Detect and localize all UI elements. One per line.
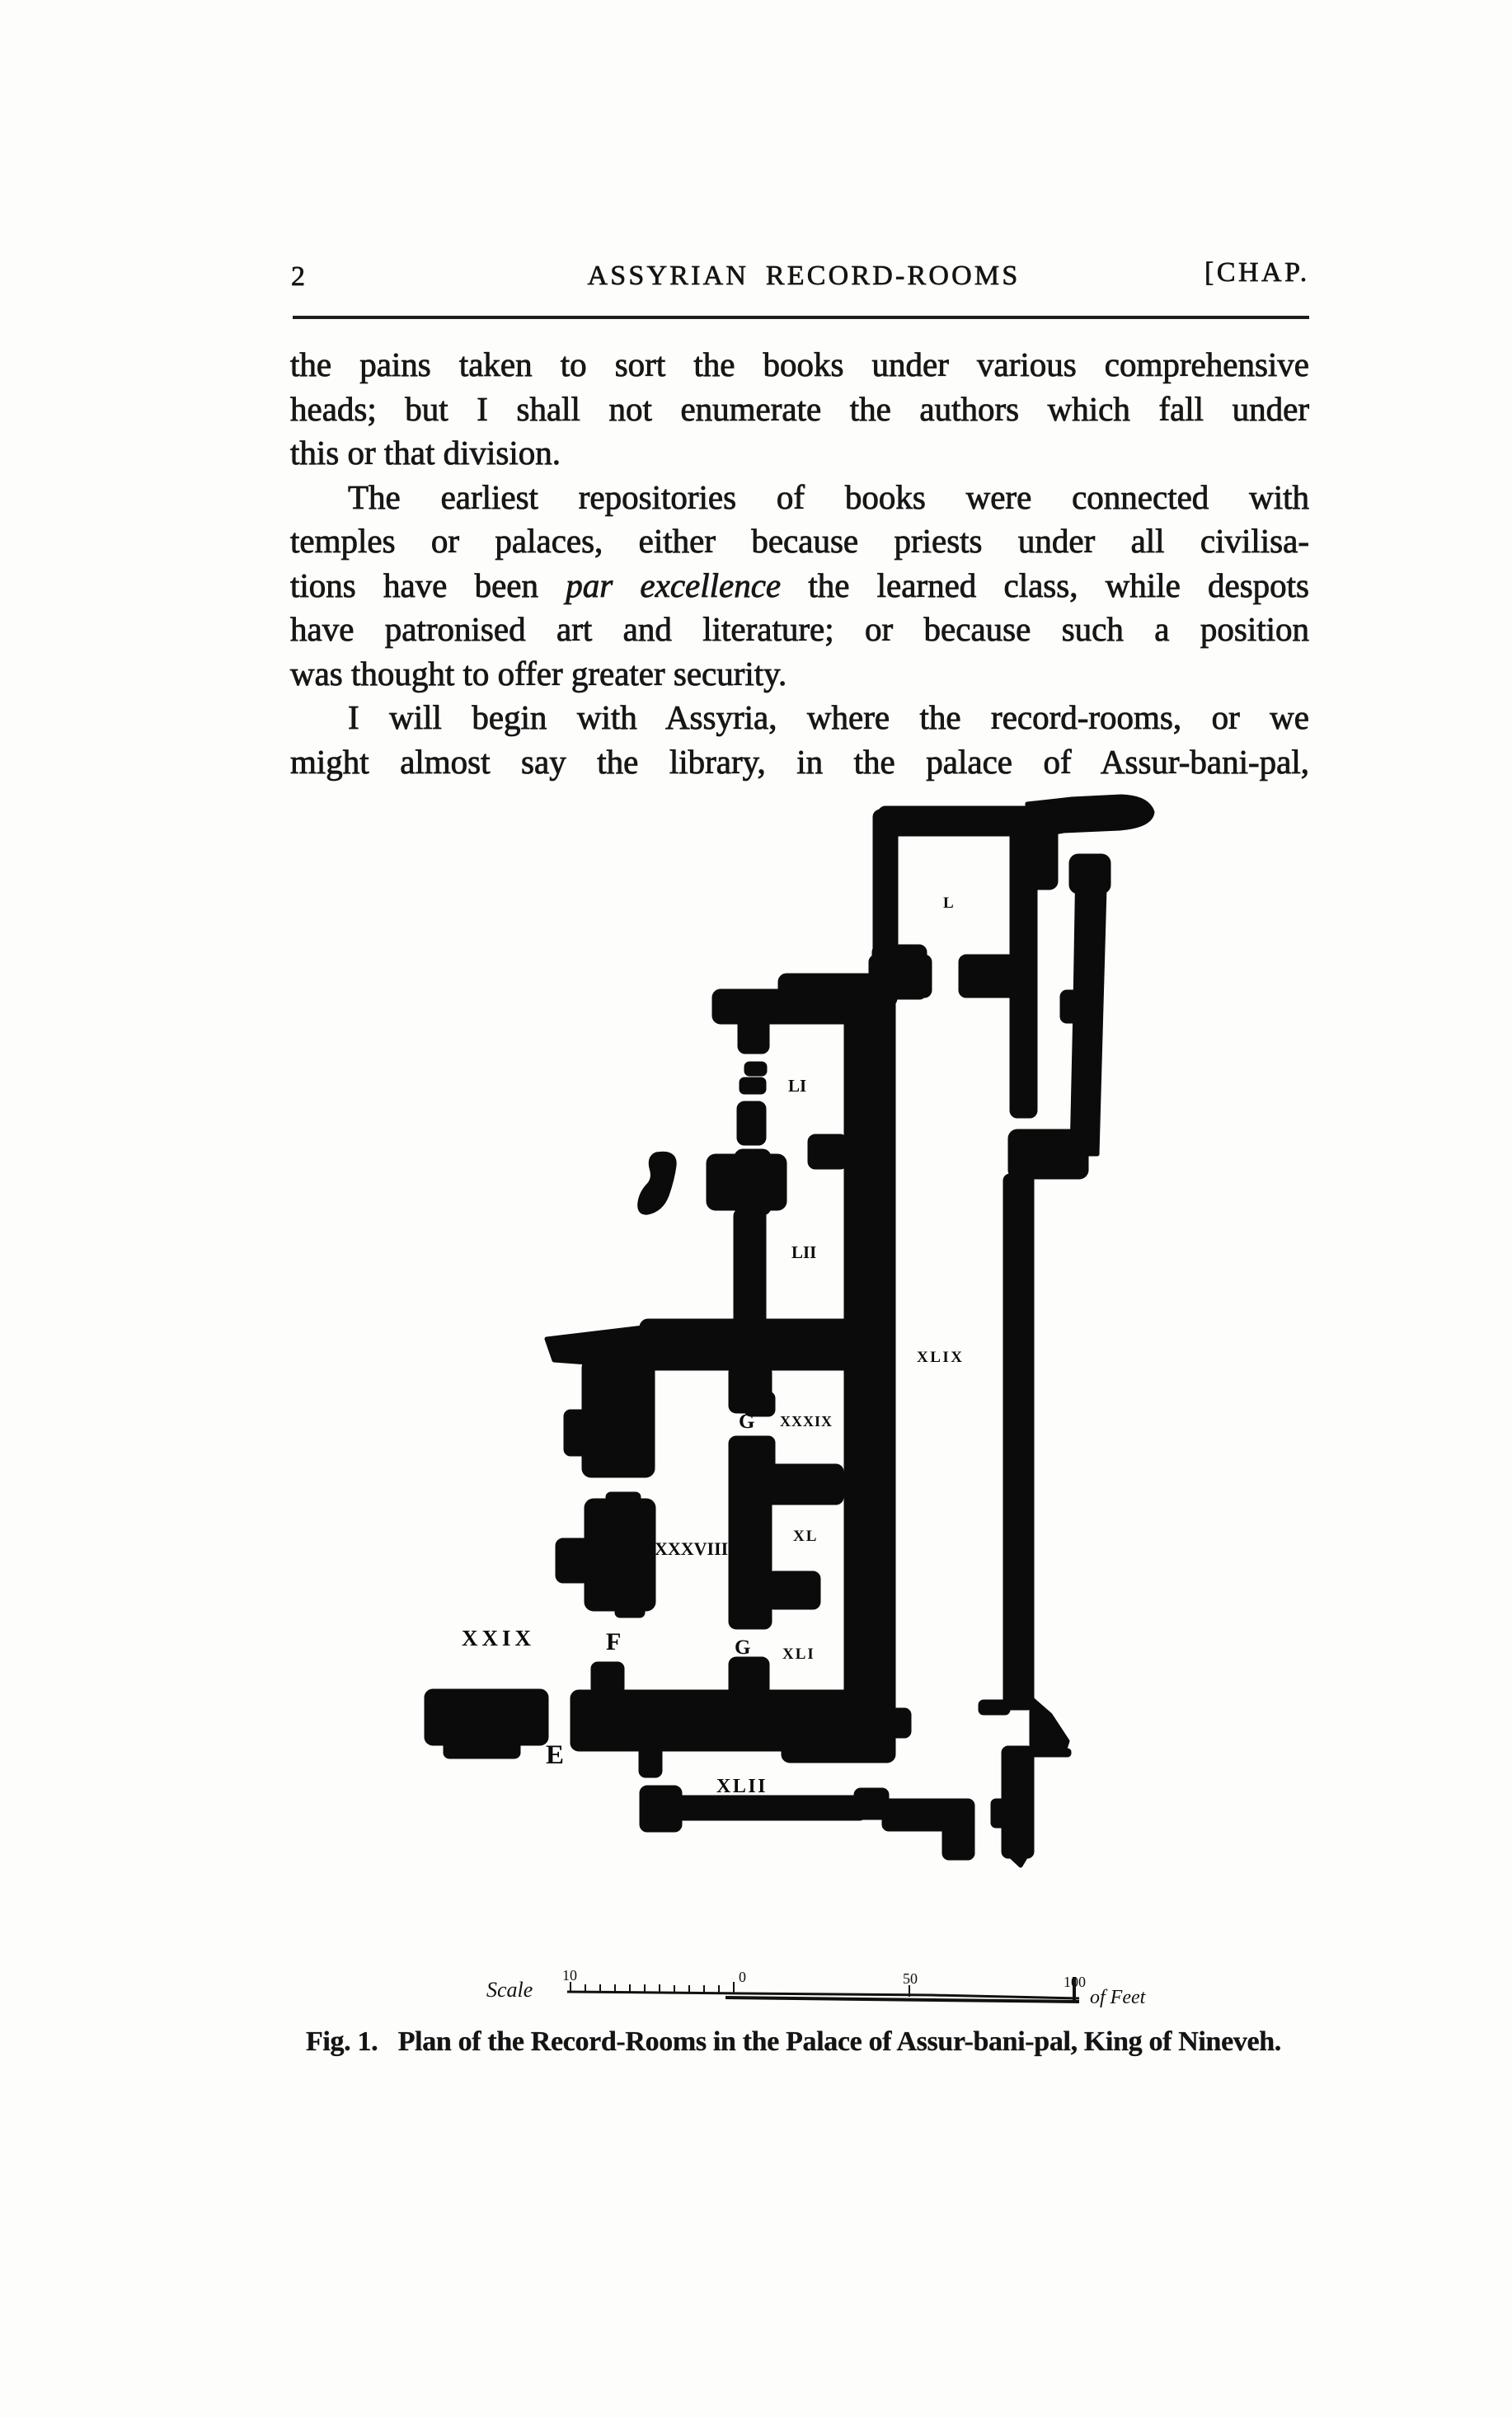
- svg-text:L: L: [943, 894, 954, 912]
- svg-text:XXXVIII: XXXVIII: [655, 1538, 728, 1559]
- svg-text:XLIX: XLIX: [917, 1349, 965, 1366]
- svg-text:XXIX: XXIX: [462, 1626, 535, 1650]
- svg-text:F: F: [606, 1628, 621, 1655]
- svg-text:XXXIX: XXXIX: [780, 1413, 833, 1430]
- svg-text:XL: XL: [793, 1528, 818, 1545]
- svg-text:LI: LI: [788, 1076, 806, 1096]
- svg-text:10: 10: [562, 1967, 577, 1984]
- svg-text:G: G: [739, 1411, 754, 1433]
- svg-text:E: E: [546, 1740, 564, 1770]
- svg-text:XLI: XLI: [782, 1646, 815, 1663]
- svg-text:XLII: XLII: [716, 1776, 768, 1797]
- svg-text:of Feet: of Feet: [1090, 1987, 1147, 2008]
- svg-text:0: 0: [739, 1969, 746, 1985]
- svg-text:G: G: [735, 1636, 750, 1659]
- svg-text:100: 100: [1064, 1974, 1086, 1990]
- svg-text:Scale: Scale: [486, 1978, 533, 2002]
- svg-text:LII: LII: [791, 1242, 816, 1262]
- svg-text:50: 50: [903, 1970, 918, 1987]
